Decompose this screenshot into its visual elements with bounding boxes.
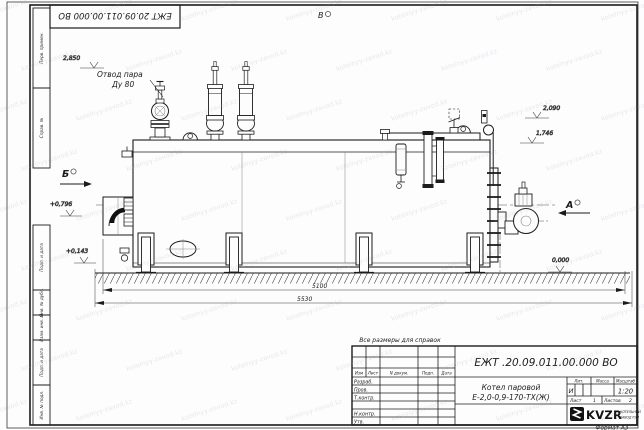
row-nkontr: Н.контр. bbox=[354, 412, 375, 418]
title-block: Изм Лист N докум. Подп. Дата Разраб. Про… bbox=[352, 346, 641, 426]
col-header-list: Лист bbox=[367, 371, 379, 376]
product-name-line2: Е-2,0-0,9-170-ТХ(Ж) bbox=[472, 393, 549, 402]
safety-valve bbox=[238, 62, 255, 141]
drawing-sheet: kotelnyy-zavod.kzkotelnyy-zavod.kzkoteln… bbox=[0, 0, 644, 430]
side-label-perv-primen: Перв. примен. bbox=[39, 32, 44, 63]
burner bbox=[494, 182, 550, 273]
ground-hatch bbox=[95, 274, 630, 284]
elevation-0143: +0,143 bbox=[66, 248, 88, 255]
front-fitting bbox=[122, 151, 132, 157]
dim-5530-value: 5530 bbox=[297, 296, 312, 303]
front-nozzle bbox=[124, 198, 133, 210]
col-header-podp: Подп. bbox=[422, 371, 434, 376]
scale-header: Масштаб bbox=[616, 379, 636, 384]
steam-valve bbox=[150, 82, 170, 141]
company-name-line2: ЗАВОД РЭП bbox=[620, 416, 640, 420]
col-header-izm: Изм bbox=[355, 371, 363, 376]
top-stamp: ЕЖТ 20.09.011.00.000 ВО bbox=[50, 5, 180, 28]
sheet-value: 1 bbox=[593, 398, 596, 404]
front-air-box bbox=[103, 147, 133, 262]
logo-text: KVZR bbox=[586, 408, 622, 422]
svg-text:А: А bbox=[565, 200, 573, 211]
view-arrow-right bbox=[84, 181, 92, 187]
reference-note: Все размеры для справок bbox=[359, 337, 441, 344]
scale-value: 1:20 bbox=[618, 388, 633, 396]
front-nozzle bbox=[124, 214, 133, 226]
burner-scroll bbox=[514, 209, 539, 234]
side-label-podp-data-2: Подп. и дата bbox=[39, 348, 44, 377]
company-logo: KVZR КОТЕЛЬНЫЙ ЗАВОД РЭП bbox=[570, 407, 641, 422]
steam-outlet-callout: Отвод пара Ду 80 bbox=[97, 70, 163, 97]
format-note: Формат А3 bbox=[595, 426, 628, 430]
svg-text:В: В bbox=[318, 11, 324, 20]
safety-valve bbox=[207, 62, 224, 141]
water-gauge bbox=[396, 144, 406, 188]
side-label-podp-data-1: Подп. и дата bbox=[39, 243, 44, 272]
svg-text:Б: Б bbox=[62, 169, 69, 180]
elevation-0000: 0,000 bbox=[552, 257, 569, 264]
lifting-lug bbox=[183, 133, 197, 140]
company-name-line1: КОТЕЛЬНЫЙ bbox=[620, 409, 641, 414]
sheet-label: Лист bbox=[569, 398, 582, 404]
ground bbox=[95, 273, 630, 284]
view-marker-v: В bbox=[318, 11, 331, 20]
elevation-2850: 2,850 bbox=[63, 55, 80, 62]
lit-header: Лит. bbox=[573, 379, 583, 384]
elevation-2090: 2,090 bbox=[543, 105, 560, 112]
drain-valve bbox=[120, 248, 129, 253]
steam-outlet-label: Отвод пара bbox=[97, 70, 143, 79]
side-label-inv-dubl: Инв. № дубл. bbox=[39, 288, 44, 317]
sheets-label: Листов bbox=[603, 398, 621, 404]
row-prov: Пров. bbox=[354, 388, 368, 394]
view-marker-b: Б bbox=[60, 169, 92, 187]
col-header-data: Дата bbox=[440, 371, 452, 376]
elevation-0796: +0,796 bbox=[50, 201, 72, 208]
frame-side-column: Перв. примен. Справ. № Подп. и дата Инв.… bbox=[33, 8, 50, 425]
dim-5100-value: 5100 bbox=[312, 283, 327, 290]
technical-drawing-canvas: Перв. примен. Справ. № Подп. и дата Инв.… bbox=[0, 0, 644, 430]
side-label-sprav-no: Справ. № bbox=[39, 117, 44, 138]
row-utv: Утв. bbox=[354, 420, 364, 426]
side-label-inv-podl: Инв. № подл. bbox=[39, 391, 44, 420]
top-stamp-doc-number: ЕЖТ 20.09.011.00.000 ВО bbox=[58, 10, 172, 20]
sheets-value: 2 bbox=[629, 398, 632, 404]
lit-value: И bbox=[569, 387, 574, 395]
view-marker-a: А bbox=[558, 200, 590, 216]
side-label-vzam-inv: Взам. инв. № bbox=[39, 313, 44, 342]
row-razrab: Разраб. bbox=[354, 380, 373, 386]
elevation-1746: 1,746 bbox=[536, 130, 553, 137]
steam-outlet-dn: Ду 80 bbox=[111, 80, 134, 89]
doc-number: ЕЖТ .20.09.011.00.000 ВО bbox=[474, 357, 617, 369]
lever-valve bbox=[449, 109, 461, 133]
product-name-line1: Котел паровой bbox=[482, 383, 541, 392]
col-header-doc: N докум. bbox=[390, 371, 409, 376]
view-arrow-left bbox=[558, 210, 566, 216]
row-tkontr: Т.контр. bbox=[354, 396, 375, 402]
burner-motor bbox=[515, 194, 532, 206]
mass-header: Масса bbox=[596, 379, 609, 384]
